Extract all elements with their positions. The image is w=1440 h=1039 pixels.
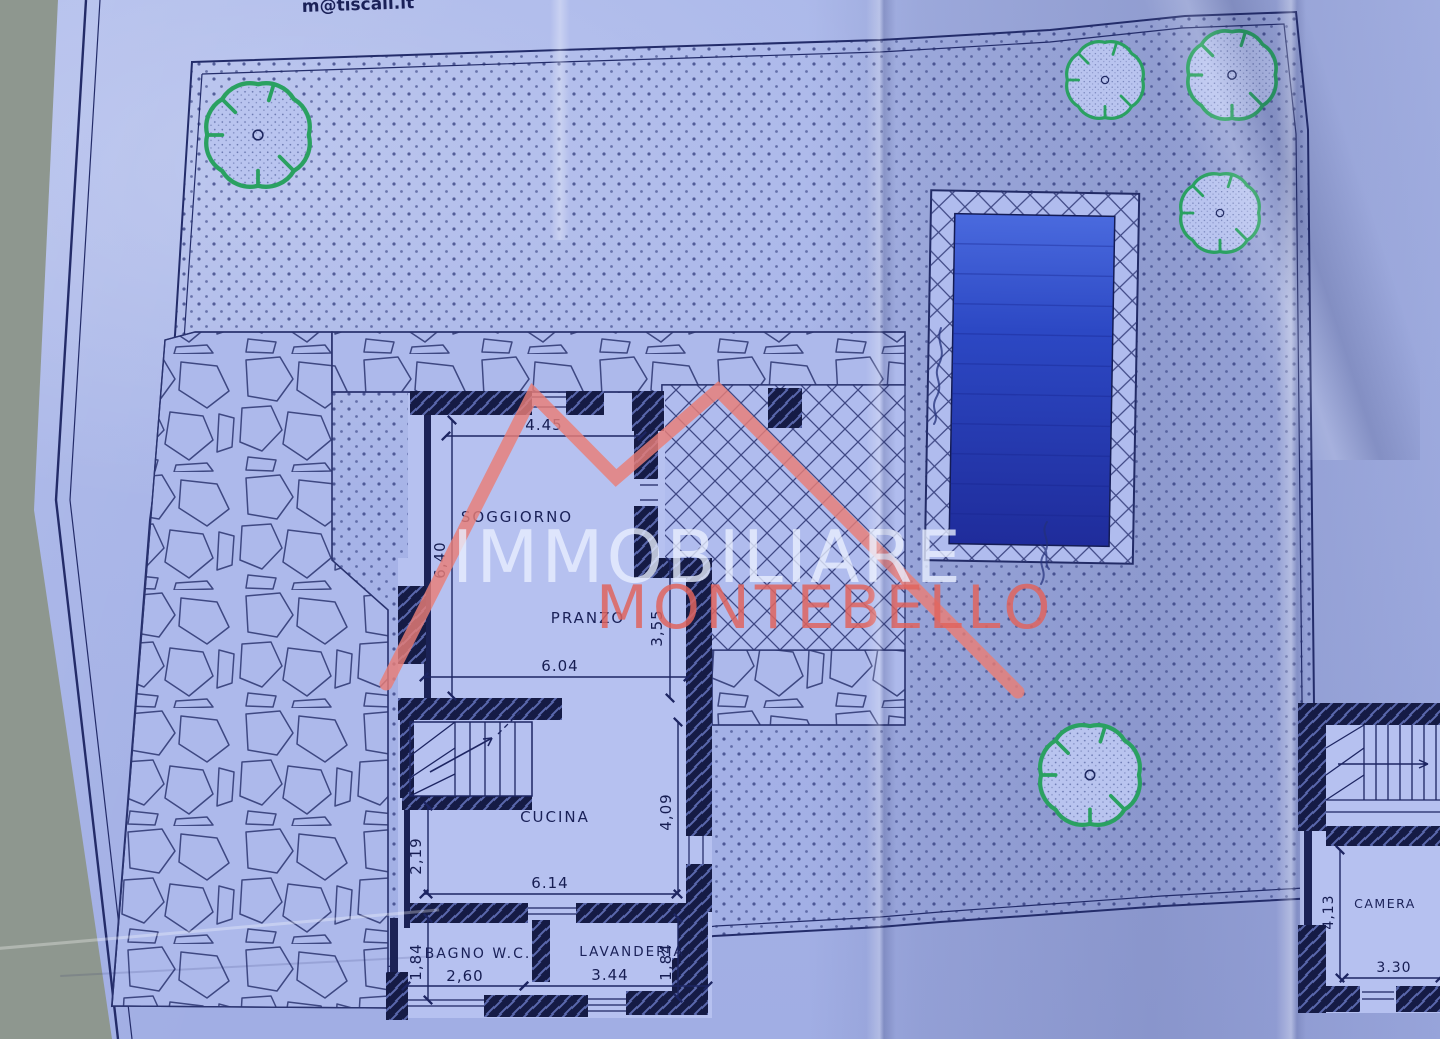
svg-text:3.30: 3.30 [1376,960,1411,976]
tree-icon [1188,31,1276,119]
tree-icon [1067,42,1144,119]
svg-text:2,19: 2,19 [407,837,425,874]
svg-text:6.04: 6.04 [541,657,578,675]
svg-text:4,13: 4,13 [1321,894,1337,929]
ground-floor-plan: SOGGIORNO PRANZO CUCINA BAGNO W.C. LAVAN… [386,391,712,1020]
tree-icon [206,83,310,187]
room-cucina-label: CUCINA [520,808,590,826]
svg-text:1,84: 1,84 [657,943,675,980]
paper-sheet: SOGGIORNO PRANZO CUCINA BAGNO W.C. LAVAN… [0,0,1440,1039]
svg-text:4,09: 4,09 [657,793,675,830]
tree-icon [1040,725,1140,825]
upper-floor-fragment: CAMERA 4,13 3.30 [1298,703,1440,1013]
room-bagno-label: BAGNO W.C. [425,946,532,962]
pool-area [925,190,1139,564]
watermark-brand-line2: MONTEBELLO [596,573,1055,643]
svg-text:2,60: 2,60 [446,967,483,985]
site-plan-drawing: SOGGIORNO PRANZO CUCINA BAGNO W.C. LAVAN… [0,0,1440,1039]
tree-icon [1181,174,1260,253]
porch-pillars [768,388,802,428]
room-camera-label: CAMERA [1354,896,1416,911]
photographed-floor-plan: SOGGIORNO PRANZO CUCINA BAGNO W.C. LAVAN… [0,0,1440,1039]
swimming-pool [949,214,1115,547]
svg-text:6.14: 6.14 [531,874,568,892]
drawing-frame-border [56,0,132,1039]
svg-text:1,84: 1,84 [407,943,425,980]
svg-text:3.44: 3.44 [591,966,628,984]
email-header-text: m@tiscali.it [301,0,414,17]
